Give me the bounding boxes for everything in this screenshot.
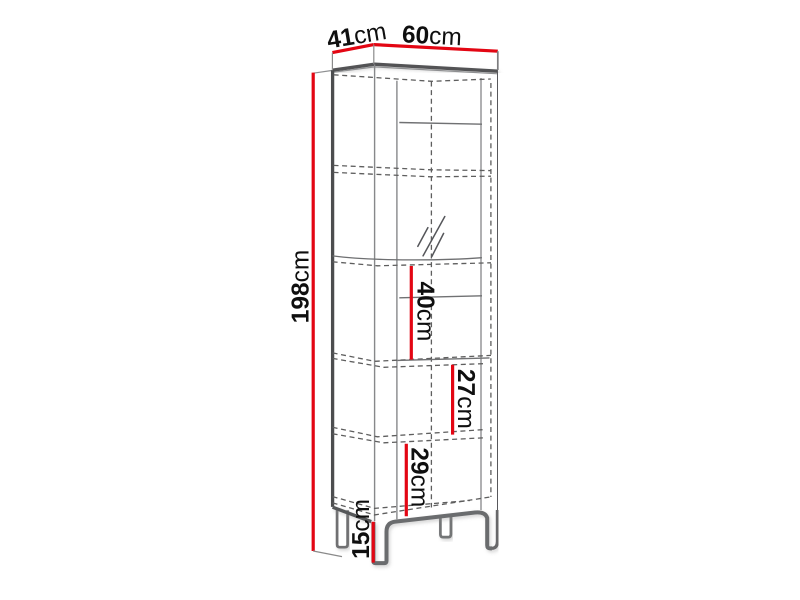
svg-text:29cm: 29cm: [406, 447, 433, 507]
svg-text:15cm: 15cm: [348, 499, 375, 559]
svg-text:27cm: 27cm: [452, 369, 479, 429]
svg-text:198cm: 198cm: [287, 250, 314, 324]
svg-text:40cm: 40cm: [412, 282, 439, 342]
svg-text:60cm: 60cm: [401, 21, 462, 51]
svg-text:41cm: 41cm: [325, 18, 389, 55]
